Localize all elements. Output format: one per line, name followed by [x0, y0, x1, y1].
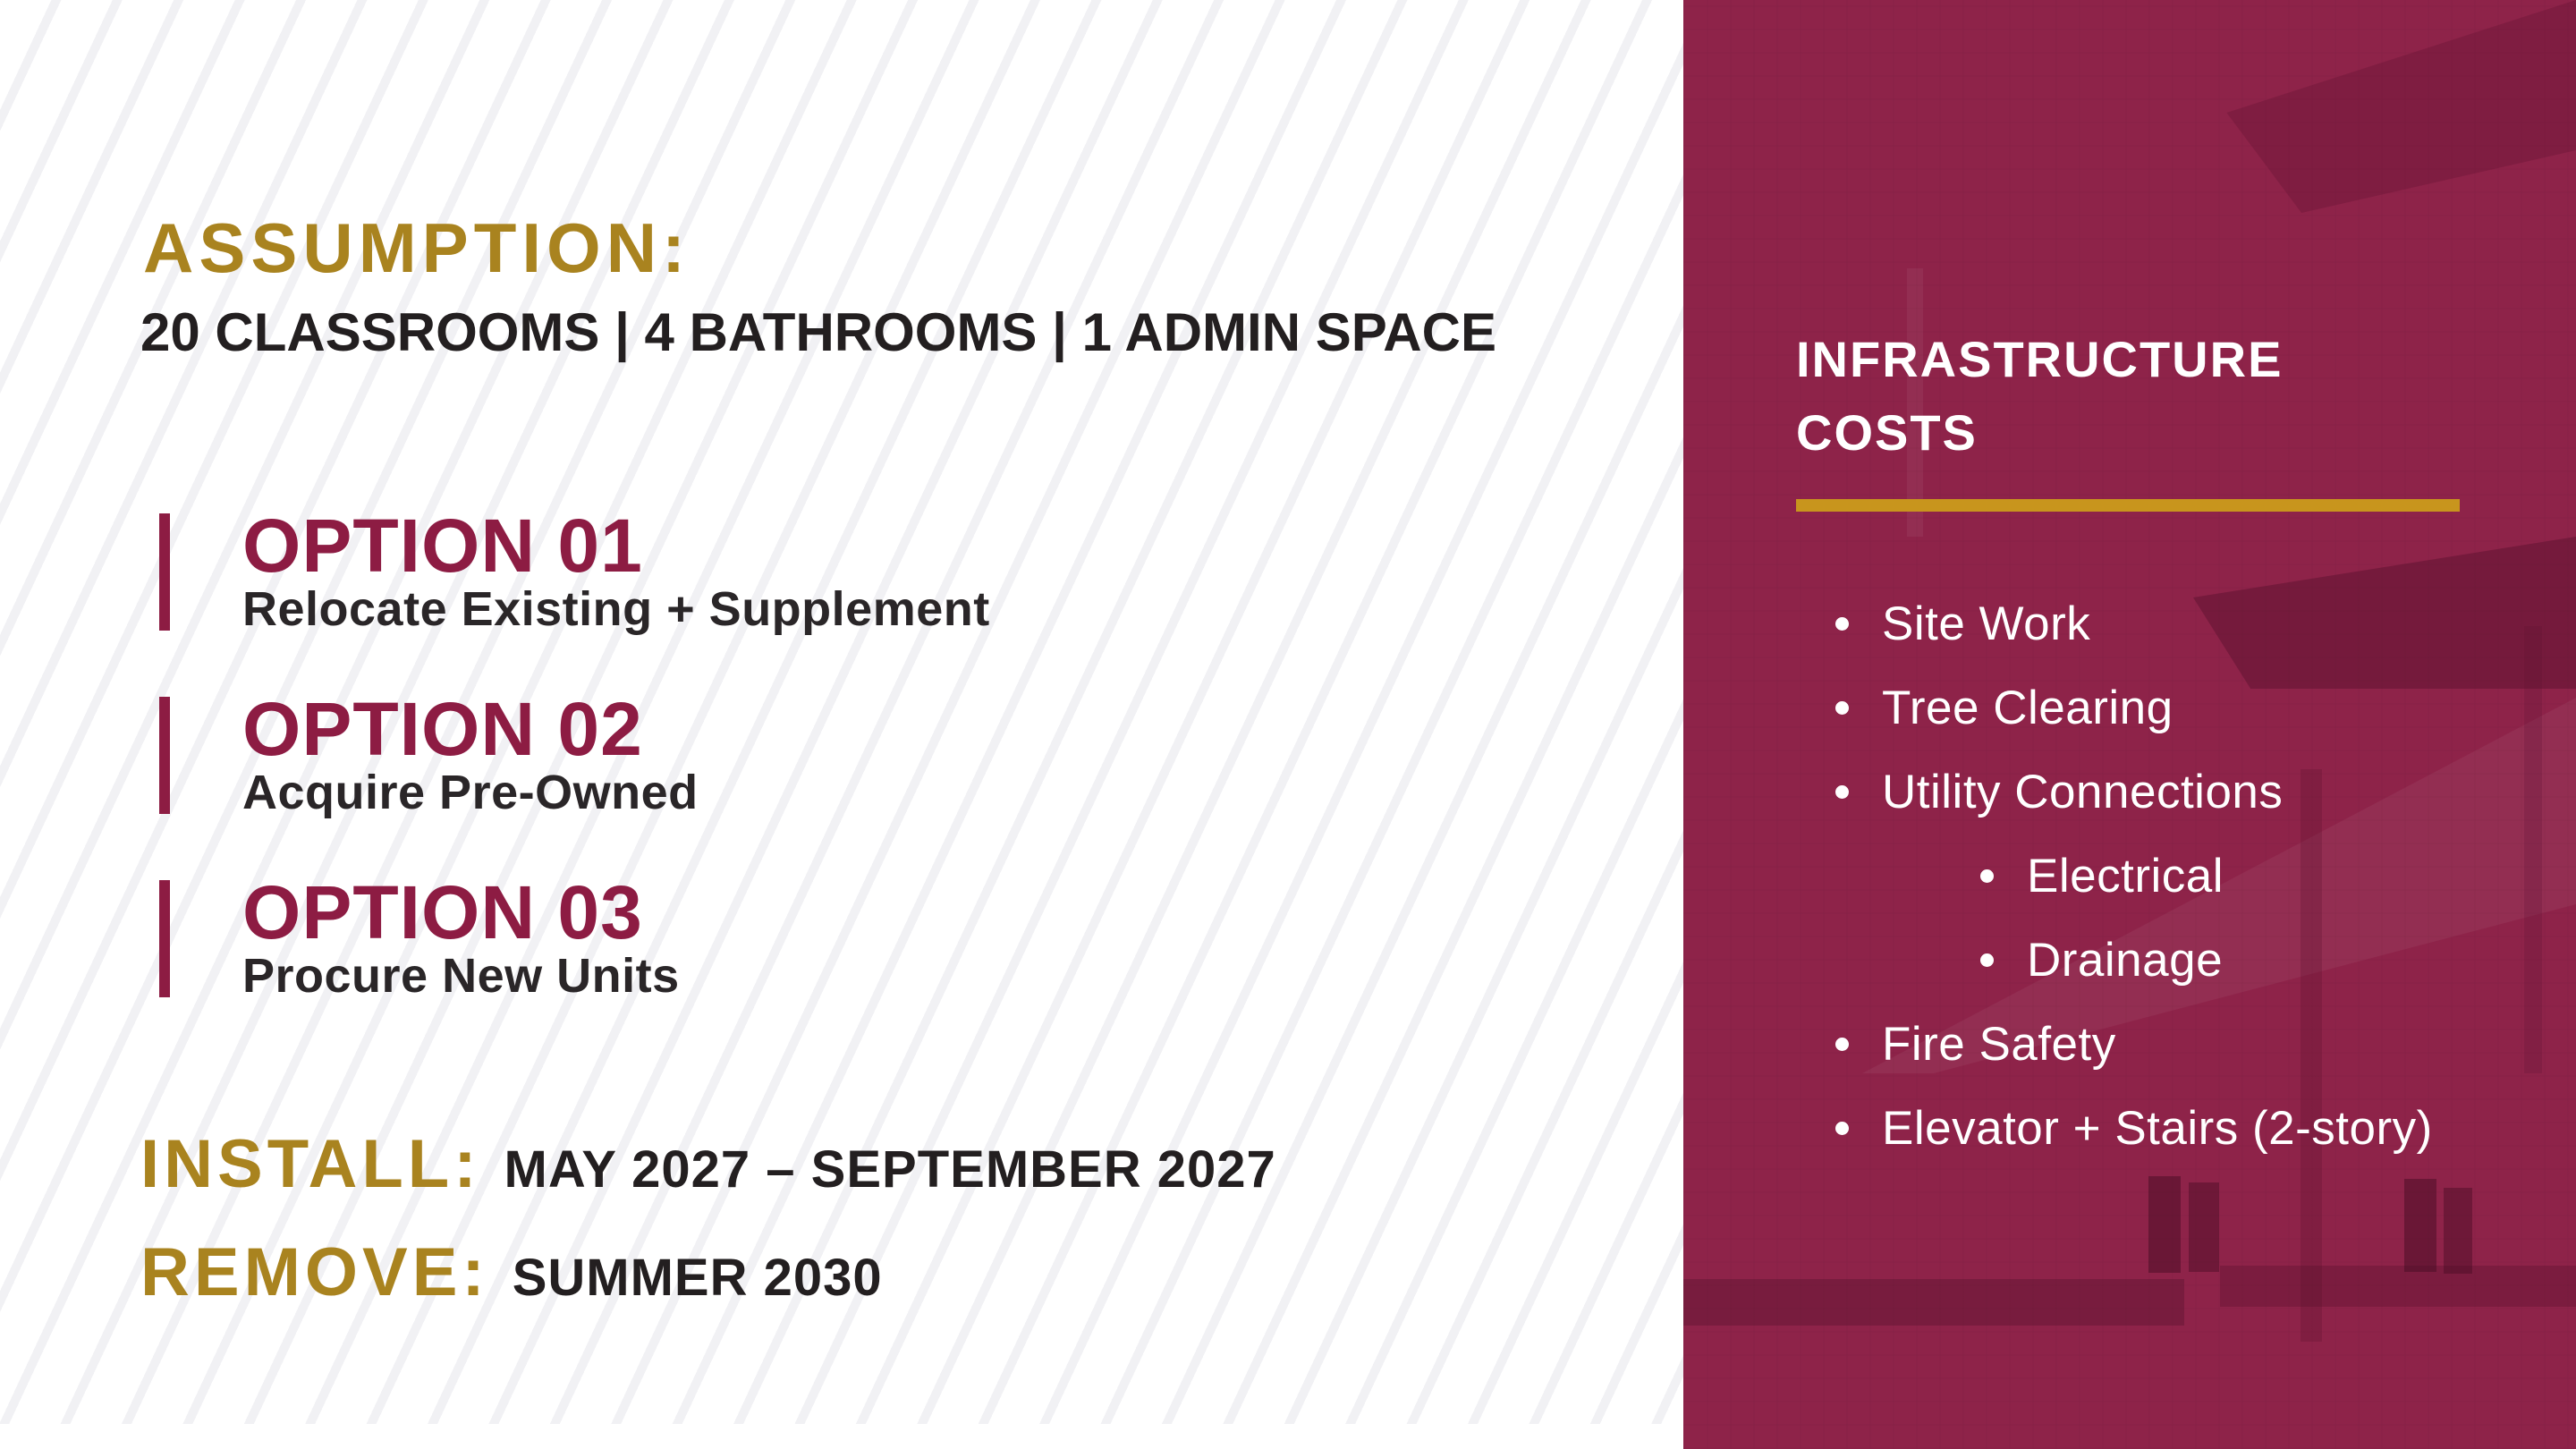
slide-canvas: ASSUMPTION: 20 CLASSROOMS | 4 BATHROOMS … — [0, 0, 2576, 1449]
cost-item-label: Tree Clearing — [1882, 681, 2173, 735]
install-row: INSTALL: MAY 2027 – SEPTEMBER 2027 — [140, 1131, 1276, 1199]
panel-title-line1: INFRASTRUCTURE — [1796, 323, 2283, 396]
costs-list: Site Work Tree Clearing Utility Connecti… — [1835, 581, 2433, 1170]
option-03-title: OPTION 03 — [242, 875, 680, 950]
install-value: MAY 2027 – SEPTEMBER 2027 — [504, 1144, 1276, 1196]
option-02-description: Acquire Pre-Owned — [242, 768, 699, 817]
option-accent-bar — [159, 880, 170, 997]
cost-item-label: Utility Connections — [1882, 765, 2283, 819]
bullet-dot — [1835, 617, 1849, 631]
gold-divider — [1796, 499, 2460, 512]
cost-item-label: Electrical — [2027, 849, 2224, 903]
assumption-heading: ASSUMPTION: — [143, 213, 691, 283]
option-03-block: OPTION 03 Procure New Units — [159, 880, 680, 1000]
bullet-dot — [1835, 785, 1849, 799]
cost-item: Tree Clearing — [1835, 665, 2433, 750]
infrastructure-costs-panel: INFRASTRUCTURE COSTS Site Work Tree Clea… — [1683, 0, 2576, 1449]
assumption-detail: 20 CLASSROOMS | 4 BATHROOMS | 1 ADMIN SP… — [140, 306, 1496, 360]
remove-label: REMOVE: — [140, 1239, 489, 1307]
option-03-text: OPTION 03 Procure New Units — [242, 875, 680, 1000]
cost-subitem: Electrical — [1980, 834, 2433, 918]
cost-subitem: Drainage — [1980, 918, 2433, 1002]
bullet-dot — [1980, 869, 1994, 883]
install-label: INSTALL: — [140, 1131, 481, 1199]
cost-item-label: Elevator + Stairs (2-story) — [1882, 1101, 2433, 1156]
option-01-description: Relocate Existing + Supplement — [242, 585, 990, 633]
option-01-text: OPTION 01 Relocate Existing + Supplement — [242, 508, 990, 633]
remove-row: REMOVE: SUMMER 2030 — [140, 1239, 883, 1307]
cost-item: Utility Connections — [1835, 750, 2433, 834]
option-02-title: OPTION 02 — [242, 691, 699, 767]
cost-item-label: Site Work — [1882, 597, 2090, 651]
option-03-description: Procure New Units — [242, 952, 680, 1000]
cost-item-label: Fire Safety — [1882, 1017, 2116, 1072]
remove-value: SUMMER 2030 — [513, 1252, 883, 1304]
option-accent-bar — [159, 513, 170, 631]
option-02-text: OPTION 02 Acquire Pre-Owned — [242, 691, 699, 817]
option-01-title: OPTION 01 — [242, 508, 990, 583]
option-02-block: OPTION 02 Acquire Pre-Owned — [159, 697, 699, 817]
bullet-dot — [1980, 953, 1994, 967]
panel-title-line2: COSTS — [1796, 396, 2283, 470]
bullet-dot — [1835, 701, 1849, 715]
cost-item: Site Work — [1835, 581, 2433, 665]
cost-item: Elevator + Stairs (2-story) — [1835, 1086, 2433, 1170]
bullet-dot — [1835, 1038, 1849, 1051]
option-accent-bar — [159, 697, 170, 814]
cost-item-label: Drainage — [2027, 933, 2223, 987]
cost-item: Fire Safety — [1835, 1002, 2433, 1086]
panel-title: INFRASTRUCTURE COSTS — [1796, 323, 2283, 470]
bullet-dot — [1835, 1122, 1849, 1135]
option-01-block: OPTION 01 Relocate Existing + Supplement — [159, 513, 990, 633]
